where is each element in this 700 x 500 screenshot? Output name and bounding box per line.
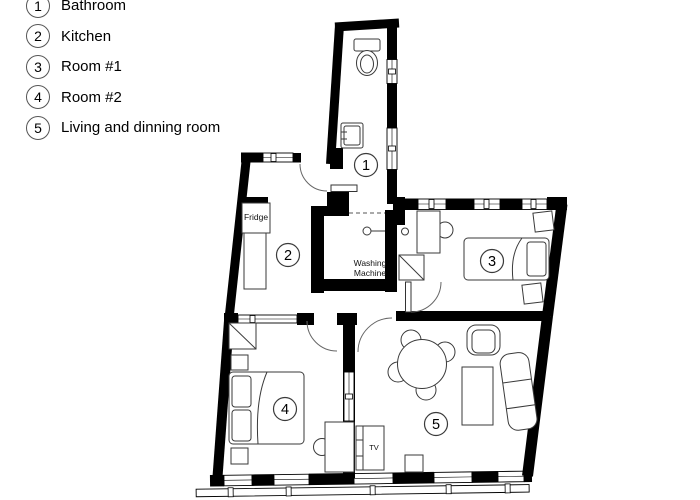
- wall-left-lower: [218, 314, 230, 477]
- sofa: [499, 351, 538, 431]
- room-bathroom: [341, 39, 380, 148]
- room-marker-5: 5: [432, 417, 440, 433]
- bed-pillow: [232, 410, 251, 441]
- room-marker-4: 4: [281, 402, 289, 418]
- coffee-table: [462, 367, 493, 425]
- door-knob: [402, 228, 409, 235]
- corridor-door-arc: [411, 282, 441, 312]
- wall-room2-top-3: [337, 313, 357, 325]
- room2-door-arc: [307, 321, 337, 351]
- window-tick: [484, 200, 489, 209]
- sill-tick: [505, 484, 510, 493]
- kitchen-counter: [244, 233, 266, 289]
- sill-tick: [286, 487, 291, 496]
- window-tick: [271, 154, 276, 162]
- nightstand: [231, 448, 248, 464]
- room-living-dining: TV: [356, 325, 538, 472]
- wall-room1-top: [393, 197, 567, 210]
- room-marker-1: 1: [362, 158, 370, 174]
- bathroom-door-leaf: [331, 185, 357, 192]
- window-sill-band: [196, 485, 529, 497]
- room-marker-2: 2: [284, 248, 292, 264]
- desk: [325, 422, 354, 472]
- bed-pillow: [232, 376, 251, 407]
- wall-closet-block: [327, 192, 349, 216]
- sill-tick: [370, 486, 375, 495]
- wall-bathroom-door-jamb: [330, 148, 343, 169]
- wall-closet-bottom: [311, 279, 397, 291]
- corridor-door-leaf: [406, 282, 412, 312]
- tv-label: TV: [369, 443, 379, 452]
- hall-door-arc: [300, 164, 327, 191]
- wall-bottom: [196, 471, 532, 498]
- sill-tick: [228, 488, 233, 497]
- wall-room1-left-jog: [393, 197, 405, 225]
- living-door-arc: [358, 318, 392, 352]
- window-tick: [250, 316, 255, 323]
- toilet-tank: [354, 39, 380, 51]
- sill-tick: [446, 485, 451, 494]
- bed-pillow: [527, 242, 546, 276]
- window-tick: [531, 200, 536, 209]
- window-tick: [429, 200, 434, 209]
- toilet-bowl: [357, 51, 378, 76]
- washing-machine-label-1: Washing: [354, 258, 387, 268]
- nightstand: [231, 355, 248, 370]
- side-table: [405, 455, 423, 472]
- wall-bathroom-left: [331, 25, 340, 164]
- wall-kitchen-top-2: [293, 153, 301, 163]
- window-tick: [389, 69, 396, 74]
- wall-room2-top-2: [297, 313, 314, 325]
- washing-machine-label-2: Machine: [354, 268, 386, 278]
- floor-plan-svg: Washing Machine Fridge: [0, 0, 700, 500]
- window-tick: [346, 394, 353, 399]
- window-tick: [389, 146, 396, 151]
- room-2: [229, 323, 354, 472]
- room-marker-3: 3: [488, 254, 496, 270]
- nightstand: [533, 211, 554, 232]
- dining-table: [398, 340, 447, 389]
- closet-sink-knob: [363, 227, 371, 235]
- floor-plan-screen: 1 Bathroom 2 Kitchen 3 Room #1 4 Room #2…: [0, 0, 700, 500]
- desk: [417, 211, 440, 253]
- wall-living-top: [396, 311, 550, 321]
- nightstand: [522, 283, 543, 304]
- fridge-label: Fridge: [244, 212, 268, 222]
- room-kitchen: Fridge: [242, 203, 270, 289]
